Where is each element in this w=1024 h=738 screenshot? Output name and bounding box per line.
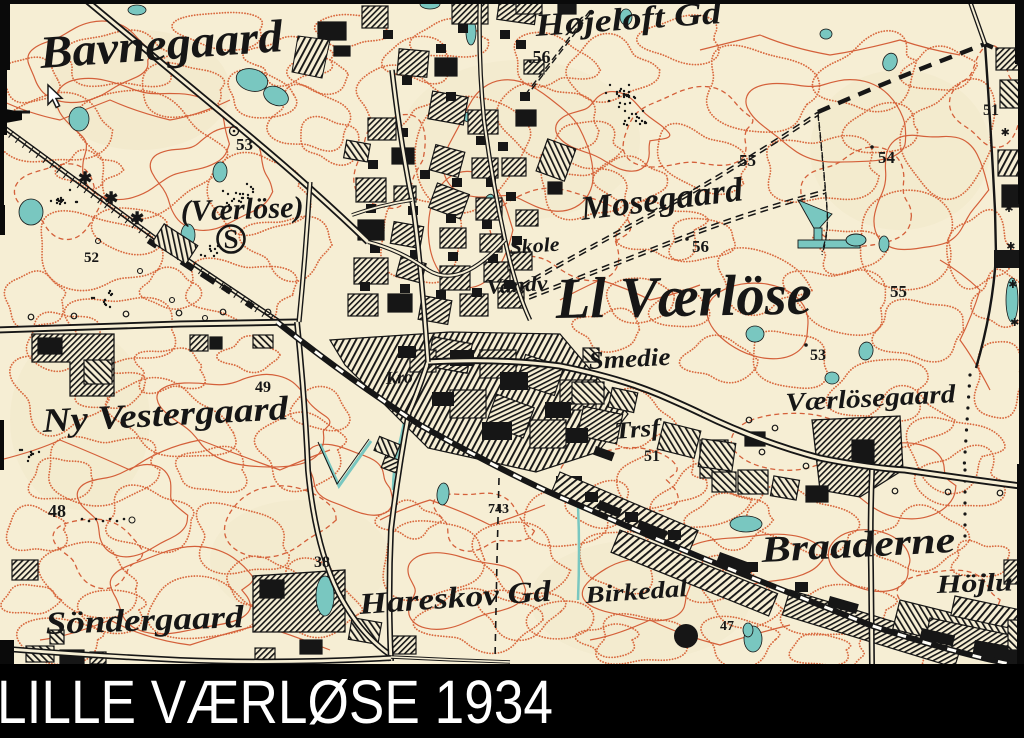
svg-text:Smedie: Smedie xyxy=(588,344,671,375)
svg-text:Ll Værlöse: Ll Værlöse xyxy=(554,262,812,331)
svg-text:48: 48 xyxy=(48,501,66,521)
svg-text:53: 53 xyxy=(236,135,253,154)
svg-text:54: 54 xyxy=(878,148,896,167)
svg-text:✱: ✱ xyxy=(1008,279,1017,291)
svg-text:✱: ✱ xyxy=(78,169,92,188)
svg-text:(Værlöse): (Værlöse) xyxy=(180,191,304,228)
svg-text:47: 47 xyxy=(720,619,734,634)
svg-text:56: 56 xyxy=(692,237,709,256)
svg-text:Söndergaard: Söndergaard xyxy=(45,598,245,641)
svg-text:743: 743 xyxy=(488,502,509,517)
svg-text:51: 51 xyxy=(644,448,660,465)
svg-text:52: 52 xyxy=(84,250,99,266)
svg-text:53: 53 xyxy=(810,347,826,364)
svg-text:38: 38 xyxy=(314,554,330,571)
svg-text:✱: ✱ xyxy=(1001,127,1010,139)
svg-text:LILLE VÆRLØSE 1934: LILLE VÆRLØSE 1934 xyxy=(0,668,553,736)
svg-text:.56: .56 xyxy=(528,47,551,67)
svg-text:Skole: Skole xyxy=(509,234,561,259)
svg-text:✱: ✱ xyxy=(104,189,118,208)
svg-text:S: S xyxy=(223,224,238,254)
svg-text:49: 49 xyxy=(255,379,271,396)
svg-text:Trsf: Trsf xyxy=(613,415,663,445)
svg-text:Höjlu: Höjlu xyxy=(935,567,1013,599)
svg-text:Vandv: Vandv xyxy=(486,271,549,299)
svg-text:✱: ✱ xyxy=(130,209,144,228)
svg-text:Kro: Kro xyxy=(384,367,413,388)
svg-text:51: 51 xyxy=(983,102,999,119)
svg-text:55: 55 xyxy=(739,151,756,170)
svg-text:55: 55 xyxy=(890,282,907,301)
svg-text:✱: ✱ xyxy=(1010,317,1019,329)
